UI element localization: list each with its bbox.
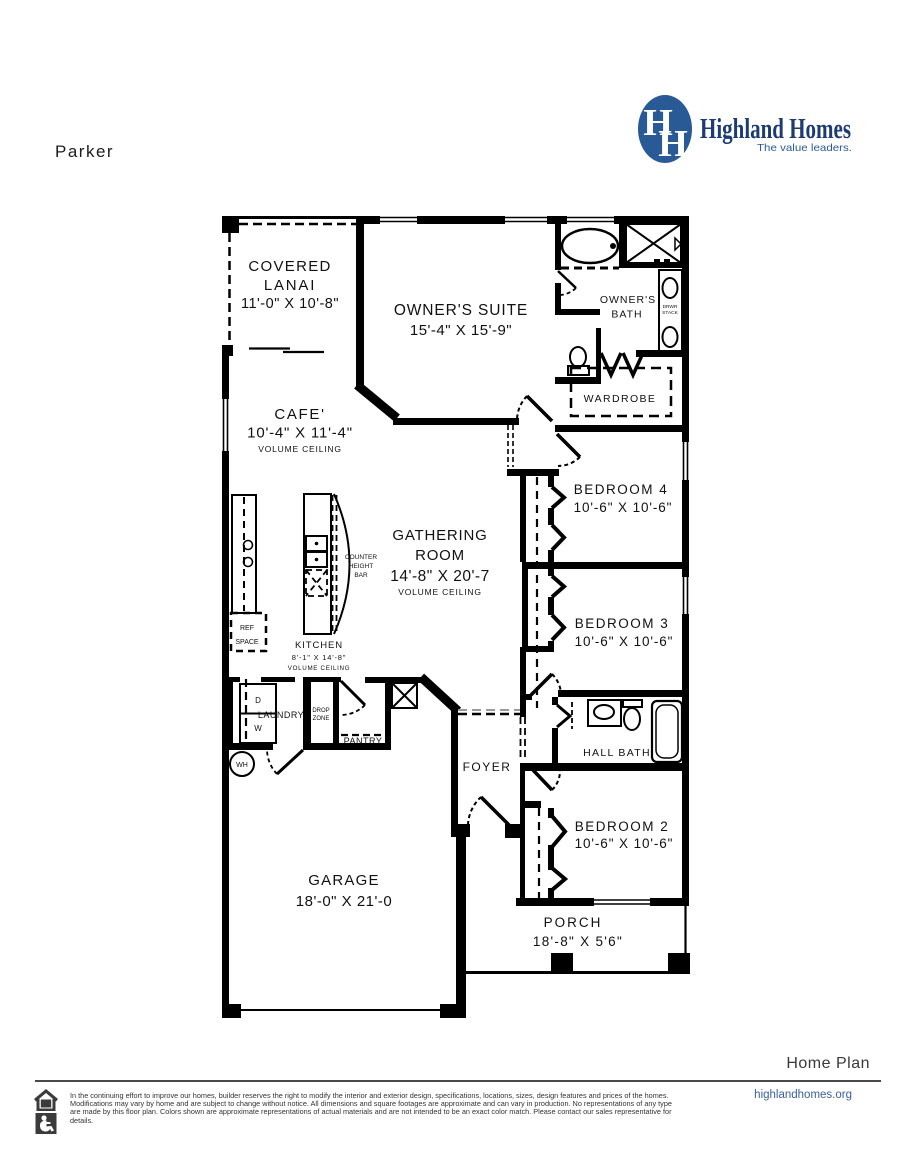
svg-text:DRWR: DRWR — [663, 304, 678, 310]
svg-text:SPACE: SPACE — [235, 639, 259, 646]
svg-text:WARDROBE: WARDROBE — [584, 393, 657, 405]
svg-text:STACK: STACK — [662, 310, 678, 316]
svg-text:18'-0" X 21'-0: 18'-0" X 21'-0 — [296, 893, 392, 910]
svg-text:BEDROOM 4: BEDROOM 4 — [574, 482, 669, 497]
svg-text:BAR: BAR — [354, 572, 368, 579]
svg-text:PORCH: PORCH — [544, 915, 603, 930]
svg-text:COUNTER: COUNTER — [345, 554, 377, 561]
svg-text:ZONE: ZONE — [313, 716, 330, 722]
svg-text:BEDROOM 3: BEDROOM 3 — [575, 616, 670, 631]
svg-text:8'-1" X 14'-8": 8'-1" X 14'-8" — [292, 653, 346, 662]
svg-text:10'-6" X 10'-6": 10'-6" X 10'-6" — [574, 500, 673, 515]
svg-text:WH: WH — [236, 762, 248, 769]
svg-text:PANTRY: PANTRY — [344, 736, 383, 746]
svg-text:14'-8" X 20'-7: 14'-8" X 20'-7 — [390, 568, 489, 585]
svg-text:FOYER: FOYER — [463, 760, 512, 774]
svg-text:ROOM: ROOM — [415, 547, 465, 564]
svg-text:VOLUME CEILING: VOLUME CEILING — [258, 444, 341, 454]
svg-text:REF: REF — [240, 625, 254, 632]
svg-text:15'-4" X 15'-9": 15'-4" X 15'-9" — [410, 322, 512, 339]
svg-text:LAUNDRY: LAUNDRY — [258, 710, 304, 720]
svg-text:10'-6" X 10'-6": 10'-6" X 10'-6" — [575, 836, 674, 851]
svg-text:BATH: BATH — [611, 309, 642, 321]
svg-text:11'-0" X 10'-8": 11'-0" X 10'-8" — [241, 296, 339, 312]
svg-text:W: W — [254, 724, 262, 733]
svg-text:GATHERING: GATHERING — [392, 527, 487, 544]
svg-text:HALL BATH: HALL BATH — [583, 747, 651, 759]
svg-text:CAFE': CAFE' — [274, 406, 325, 423]
svg-text:10'-6" X 10'-6": 10'-6" X 10'-6" — [575, 634, 674, 649]
svg-text:10'-4" X 11'-4": 10'-4" X 11'-4" — [247, 425, 353, 442]
svg-text:LANAI: LANAI — [264, 277, 316, 294]
svg-text:OWNER'S SUITE: OWNER'S SUITE — [394, 302, 528, 319]
svg-text:D: D — [255, 696, 261, 705]
svg-text:DROP: DROP — [312, 708, 329, 714]
svg-text:HEIGHT: HEIGHT — [349, 563, 374, 570]
svg-text:VOLUME CEILING: VOLUME CEILING — [288, 665, 350, 672]
svg-text:GARAGE: GARAGE — [308, 872, 379, 889]
svg-text:KITCHEN: KITCHEN — [295, 640, 343, 651]
svg-text:OWNER'S: OWNER'S — [600, 294, 656, 306]
svg-text:VOLUME CEILING: VOLUME CEILING — [398, 587, 481, 597]
svg-text:BEDROOM 2: BEDROOM 2 — [575, 819, 670, 834]
svg-text:18'-8" X 5'6": 18'-8" X 5'6" — [533, 934, 623, 949]
svg-text:COVERED: COVERED — [248, 258, 331, 275]
